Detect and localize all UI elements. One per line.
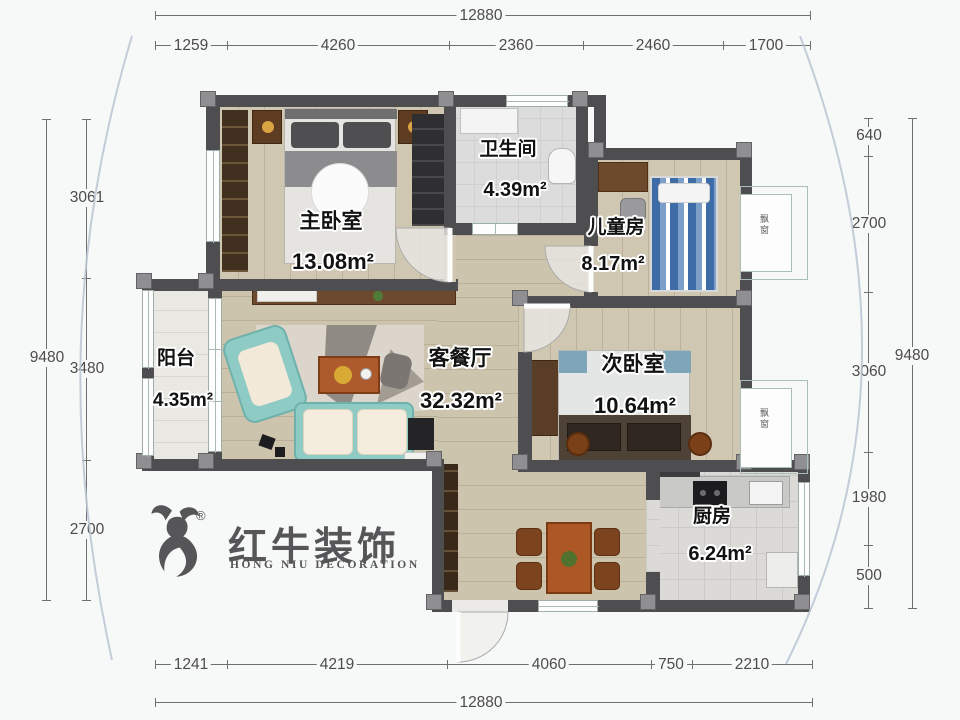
room-area-balcony: 4.35m² [153, 390, 213, 412]
door-swing-second [524, 306, 570, 352]
room-label-balcony: 阳台 [157, 343, 195, 370]
hongniu-bull-icon [150, 502, 220, 580]
floor-plan-canvas: 12880 1259 4260 2360 2460 1700 1241 4219… [0, 0, 960, 720]
room-area-master: 13.08m² [292, 249, 374, 275]
door-swing-entry [458, 612, 508, 662]
room-label-bathroom: 卫生间 [479, 134, 536, 161]
brand-name-en: HONG NIU DECORATION [230, 559, 420, 571]
room-label-master: 主卧室 [300, 205, 363, 235]
decorative-curve-left [80, 36, 132, 660]
brand-logo: ® 红牛装饰 HONG NIU DECORATION [150, 500, 430, 585]
room-area-kids: 8.17m² [581, 253, 644, 276]
room-label-kitchen: 厨房 [693, 501, 731, 528]
room-area-bathroom: 4.39m² [483, 179, 546, 202]
room-area-kitchen: 6.24m² [688, 543, 751, 566]
room-area-second: 10.64m² [594, 393, 676, 419]
room-area-living: 32.32m² [420, 388, 502, 414]
room-label-living: 客餐厅 [429, 342, 492, 372]
decorative-curve-right [786, 36, 862, 664]
room-label-kids: 儿童房 [587, 212, 644, 239]
door-swing-master [396, 228, 450, 282]
room-label-second: 次卧室 [602, 348, 665, 378]
